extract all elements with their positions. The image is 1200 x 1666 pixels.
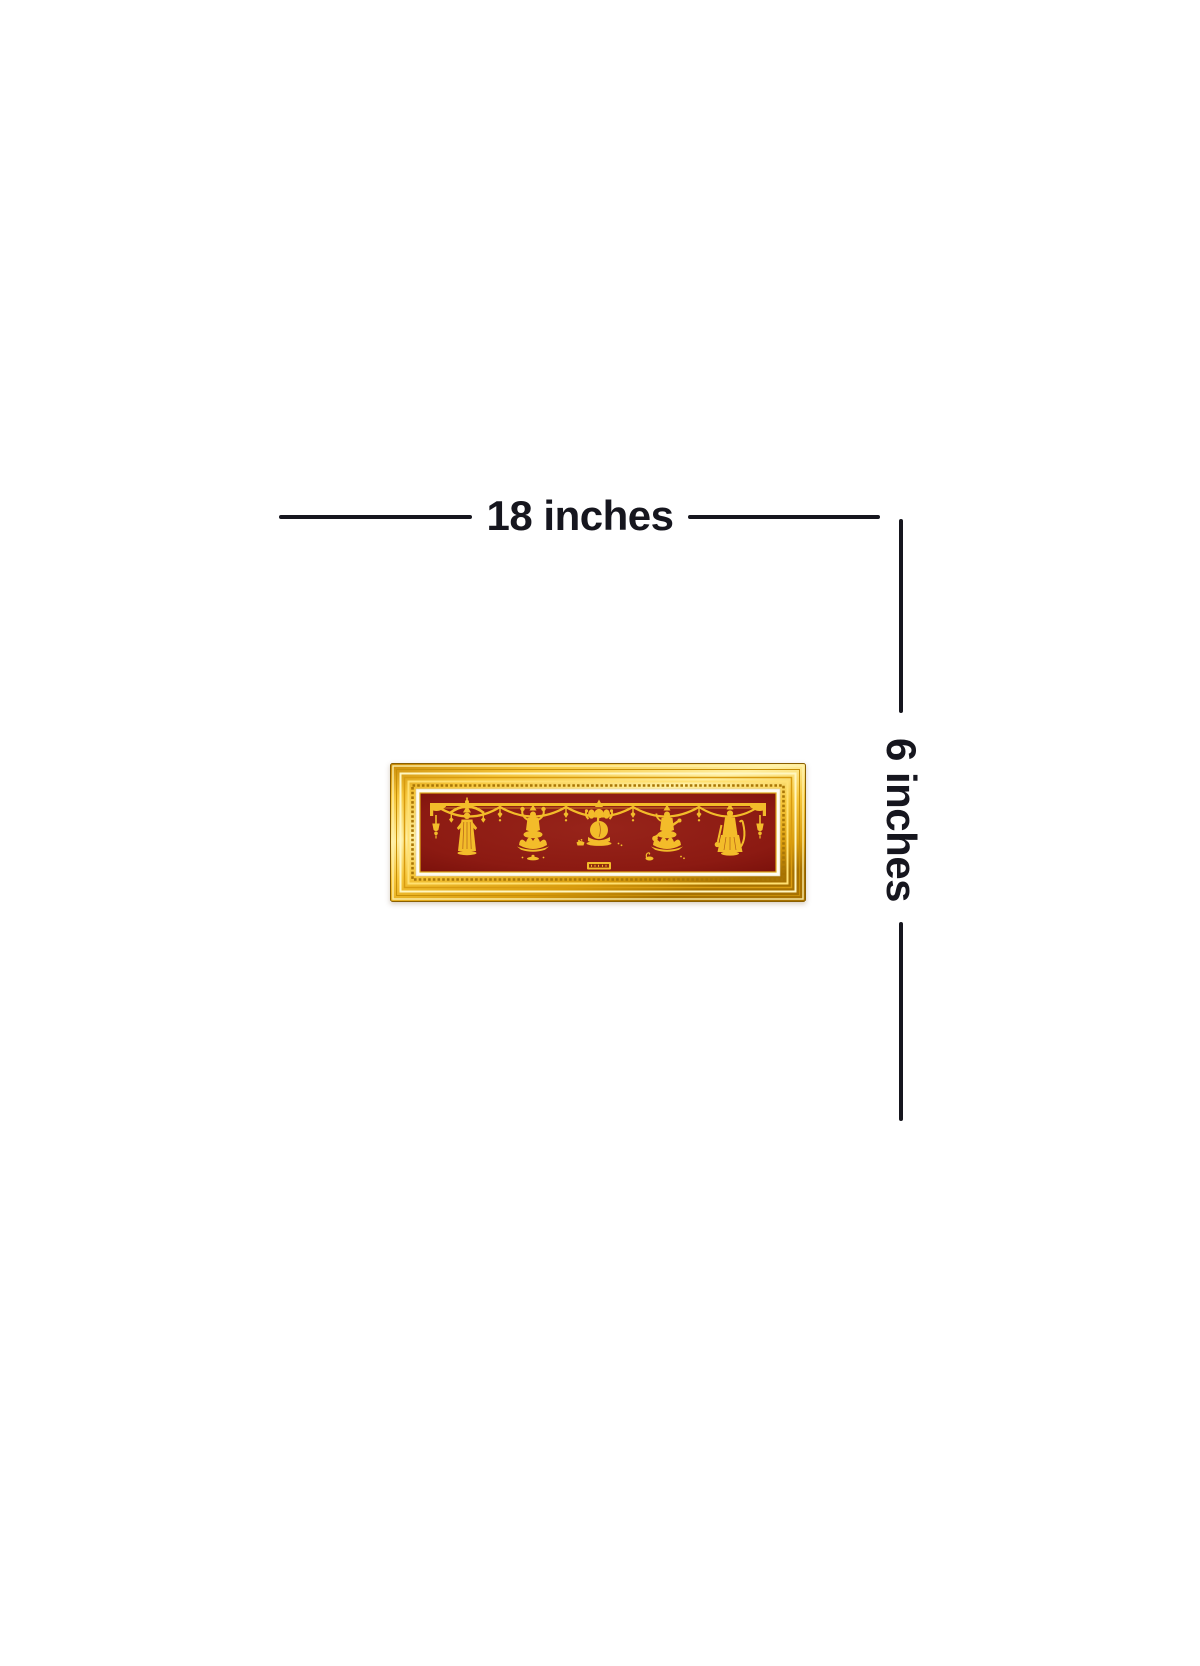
- framed-artwork: [390, 763, 806, 902]
- height-dimension-label: 6 inches: [877, 738, 925, 902]
- shubh-labh-plaque: [587, 862, 611, 870]
- dimension-diagram: 18 inches 6 inches: [0, 0, 1200, 1666]
- height-dimension-line-bottom: [899, 922, 903, 1121]
- width-dimension-line-left: [279, 515, 472, 519]
- gold-frame-image: [390, 763, 806, 902]
- width-dimension-label: 18 inches: [472, 492, 688, 540]
- height-dimension-line-top: [899, 519, 903, 713]
- width-dimension-line-right: [688, 515, 880, 519]
